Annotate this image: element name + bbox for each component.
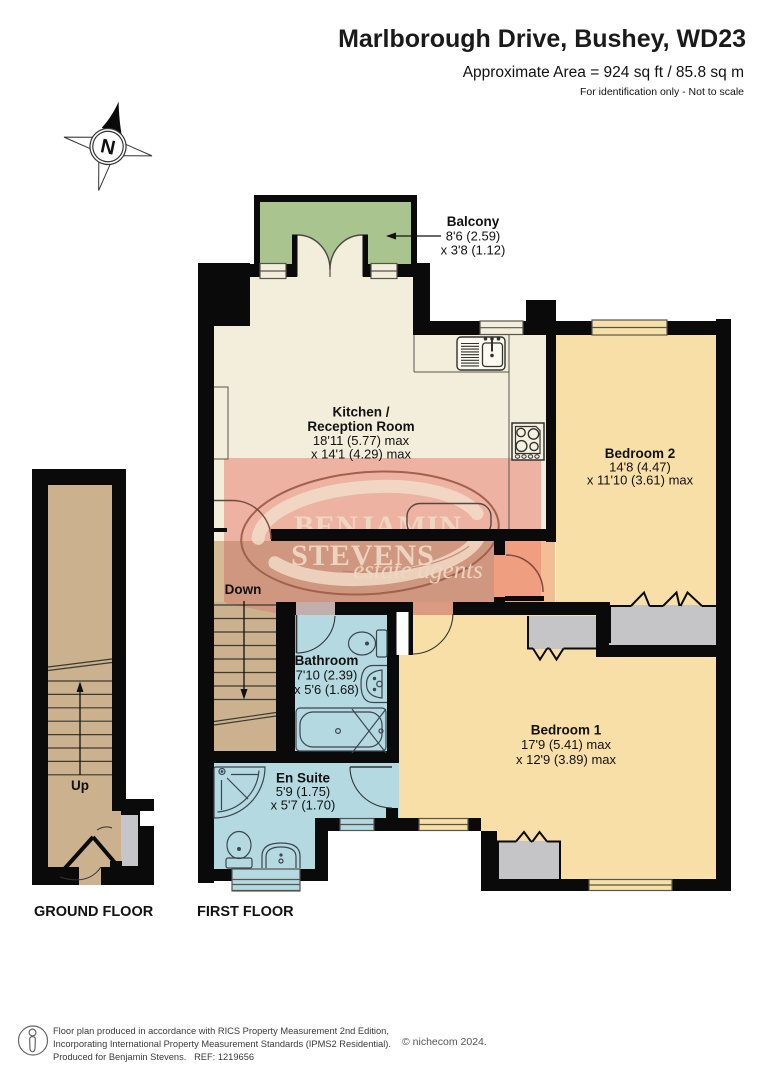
svg-text:x 5'6 (1.68): x 5'6 (1.68) [294, 682, 359, 697]
svg-text:Reception Room: Reception Room [307, 419, 414, 434]
svg-text:Balcony: Balcony [447, 214, 500, 229]
svg-text:Produced for Benjamin Stevens.: Produced for Benjamin Stevens. REF: 1219… [53, 1052, 254, 1062]
svg-text:Kitchen /: Kitchen / [332, 405, 389, 420]
svg-text:GROUND FLOOR: GROUND FLOOR [34, 904, 154, 920]
svg-text:x 12'9 (3.89) max: x 12'9 (3.89) max [516, 752, 617, 767]
svg-text:Bathroom: Bathroom [295, 653, 359, 668]
svg-text:8'6 (2.59): 8'6 (2.59) [446, 229, 501, 244]
svg-text:Bedroom 1: Bedroom 1 [531, 723, 602, 738]
svg-text:7'10 (2.39): 7'10 (2.39) [296, 668, 358, 683]
svg-text:Approximate Area = 924 sq ft /: Approximate Area = 924 sq ft / 85.8 sq m [463, 64, 744, 81]
svg-text:x 5'7 (1.70): x 5'7 (1.70) [271, 798, 336, 813]
svg-text:Incorporating International Pr: Incorporating International Property Mea… [53, 1039, 391, 1049]
svg-text:x 11'10 (3.61) max: x 11'10 (3.61) max [587, 473, 694, 488]
svg-text:Floor plan produced in accorda: Floor plan produced in accordance with R… [53, 1026, 389, 1036]
svg-text:17'9 (5.41) max: 17'9 (5.41) max [521, 737, 611, 752]
svg-text:© nichecom 2024.: © nichecom 2024. [402, 1036, 487, 1048]
svg-text:x 3'8 (1.12): x 3'8 (1.12) [441, 243, 506, 258]
svg-text:FIRST FLOOR: FIRST FLOOR [197, 904, 294, 920]
svg-text:estate agents: estate agents [353, 557, 483, 584]
svg-text:Up: Up [71, 778, 89, 793]
svg-text:Marlborough Drive, Bushey, WD2: Marlborough Drive, Bushey, WD23 [338, 25, 746, 53]
svg-text:For identification only - Not: For identification only - Not to scale [580, 86, 744, 98]
svg-text:x 14'1 (4.29) max: x 14'1 (4.29) max [311, 447, 412, 462]
svg-text:Down: Down [225, 582, 262, 597]
